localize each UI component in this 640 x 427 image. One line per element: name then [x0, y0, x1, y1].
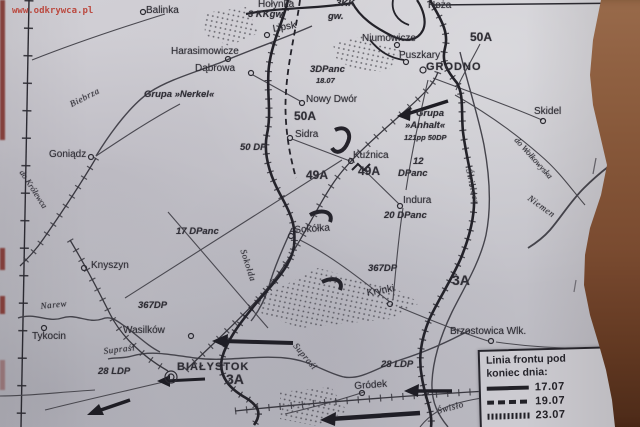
- map-label-dpanc: DPanc: [398, 168, 428, 179]
- map-label-skidel: Skidel: [534, 106, 561, 117]
- map-label-20-dpanc: 20 DPanc: [384, 210, 427, 221]
- map-label-kuźnica: Kuźnica: [353, 150, 389, 161]
- map-label--anhalt-: »Anhalt«: [405, 120, 445, 131]
- map-label-indura: Indura: [403, 195, 431, 206]
- map-label-3-kkgw-: 3 KKgw.: [248, 9, 285, 20]
- photo-artifact-red-mark: [0, 360, 5, 390]
- map-label-do-królewca: do Królewca: [18, 168, 50, 210]
- map-label-grodno: GRODNO: [426, 61, 482, 73]
- front-line-solid-swatch: [487, 385, 529, 390]
- map-content: BalinkaHołynka3KK3 KKgw.gw.LipskNiumowic…: [0, 0, 640, 427]
- map-label-28-ldp: 28 LDP: [98, 366, 130, 377]
- map-label-sokołda: Sokołda: [238, 248, 258, 283]
- map-label-puszkary: Puszkary: [399, 50, 440, 61]
- map-label-dąbrowa: Dąbrowa: [195, 63, 235, 74]
- map-label-supraśl: Supraśl: [103, 342, 136, 356]
- map-label-balinka: Balinka: [146, 5, 179, 16]
- map-label-3kk: 3KK: [336, 0, 355, 9]
- map-label-supraśl: Supraśl: [291, 341, 319, 372]
- map-label-krynki: Krynki: [366, 283, 395, 299]
- photo-artifact-red-mark: [0, 0, 5, 140]
- map-label-gw-: gw.: [328, 11, 343, 22]
- map-label-knyszyn: Knyszyn: [91, 260, 129, 271]
- legend-date: 23.07: [535, 408, 565, 421]
- photo-artifact-red-mark: [0, 248, 5, 270]
- map-label-świsłocz: Świsłocz: [464, 168, 481, 205]
- map-label-nowy-dwór: Nowy Dwór: [306, 94, 357, 105]
- legend-entry: 17.07: [487, 379, 611, 393]
- map-label-50a: 50A: [294, 109, 316, 123]
- legend-entry: 19.07: [487, 393, 611, 407]
- map-label-18-07: 18.07: [316, 76, 335, 85]
- photo-artifact-red-mark: [0, 296, 5, 314]
- map-label-49a: 49A: [306, 168, 328, 182]
- map-label-sokółka: Sokółka: [294, 223, 330, 236]
- map-label-do-wołkowyska: do Wołkowyska: [513, 135, 555, 181]
- legend-date: 19.07: [535, 394, 565, 407]
- map-label-hoża: Hoża: [428, 0, 451, 11]
- map-label-367dp: 367DP: [368, 263, 397, 274]
- map-label-grupa-nerkel-: Grupa »Nerkel«: [144, 89, 214, 100]
- map-label-sidra: Sidra: [295, 129, 318, 140]
- map-label-narew: Narew: [40, 298, 68, 311]
- map-photo: BalinkaHołynka3KK3 KKgw.gw.LipskNiumowic…: [0, 0, 640, 427]
- watermark-url: www.odkrywca.pl: [12, 6, 93, 16]
- legend-date: 17.07: [535, 380, 565, 393]
- map-label-17-dpanc: 17 DPanc: [176, 226, 219, 237]
- front-line-dashed-swatch: [487, 399, 529, 404]
- map-label-grupa: Grupa: [416, 108, 444, 119]
- front-line-hatched-swatch: [487, 412, 529, 419]
- map-label-3dpanc: 3DPanc: [310, 64, 345, 75]
- map-label-121pp-50dp: 121pp 50DP: [404, 133, 447, 142]
- map-label-wasilków: Wasilków: [123, 325, 165, 336]
- map-label-28-ldp: 28 LDP: [381, 359, 413, 370]
- map-label-50a: 50A: [470, 30, 492, 44]
- map-label-12: 12: [413, 156, 424, 167]
- map-label-367dp: 367DP: [138, 300, 167, 311]
- map-label-harasimowicze: Harasimowicze: [171, 46, 239, 57]
- map-label-tykocin: Tykocin: [32, 331, 66, 342]
- map-label-49a: 49A: [358, 164, 380, 178]
- map-label-50-dp: 50 DP: [240, 142, 266, 153]
- legend: Linia frontu pod koniec dnia: 17.07 19.0…: [478, 346, 621, 427]
- legend-entry: 23.07: [487, 407, 611, 421]
- legend-title: Linia frontu pod koniec dnia:: [486, 351, 611, 379]
- map-label-biebrza: Biebrza: [68, 85, 101, 109]
- map-label-goniądz: Goniądz: [49, 149, 86, 160]
- map-label-brzostowica-wlk-: Brzostowica Wlk.: [450, 326, 526, 337]
- map-label-3a: 3A: [226, 371, 244, 387]
- map-label-niemen: Niemen: [526, 193, 557, 219]
- map-label-gródek: Gródek: [354, 379, 387, 392]
- map-label-lipsk: Lipsk: [272, 20, 297, 35]
- map-label-świsło: Świsło: [436, 399, 465, 416]
- map-label-niumowicze: Niumowicze: [362, 33, 416, 44]
- map-label-3a: 3A: [452, 272, 470, 288]
